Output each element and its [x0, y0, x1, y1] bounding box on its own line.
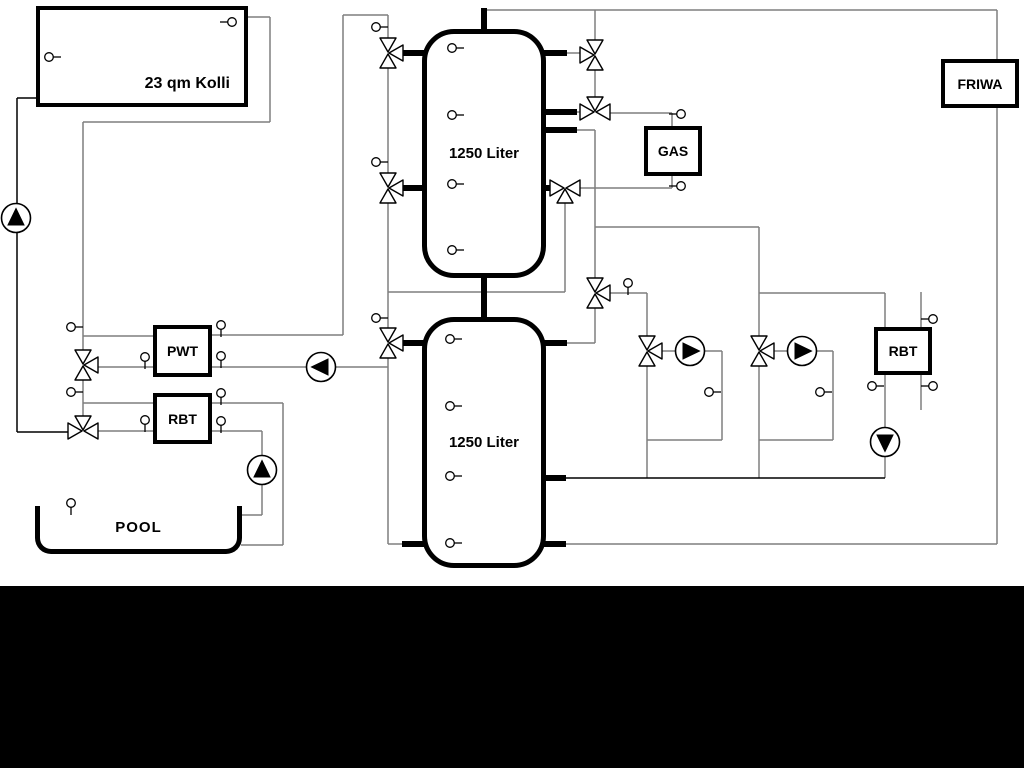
- three-way-valve-circuit2: [751, 336, 774, 366]
- sensor-tank-bottom-4: [446, 539, 462, 548]
- sensor-tank-top-3: [448, 180, 464, 189]
- sensor-circuit2-return: [816, 388, 832, 397]
- sensor-tank-top-1: [448, 44, 464, 53]
- sensor-rbt-pool-out-bottom: [217, 417, 226, 433]
- circuit2-pump-icon: [788, 337, 817, 366]
- sensor-heating-consumer-return: [921, 382, 937, 391]
- three-way-valve-tank-top-left-lower: [380, 173, 403, 203]
- sensor-rbt-pool-out-top: [217, 389, 226, 405]
- bottom-black-bar: [0, 586, 1024, 768]
- sensor-pwt-out-bottom: [217, 352, 226, 368]
- sensor-gas-return: [669, 182, 685, 191]
- sensor-rbt-heating-return: [868, 382, 884, 391]
- three-way-valve-tank-bottom-left: [380, 328, 403, 358]
- solar-pump-icon: [2, 204, 31, 233]
- three-way-valve-pwt: [75, 350, 98, 380]
- three-way-valve-tank-top-left-upper: [380, 38, 403, 68]
- three-way-valve-gas-flow: [580, 97, 610, 120]
- sensor-heating-consumer-flow: [921, 315, 937, 324]
- sensor-tank-top-2: [448, 111, 464, 120]
- sensor-rbt-pool-valve: [141, 416, 150, 432]
- sensor-valve-bottom-left: [372, 314, 388, 323]
- sensor-collector-flow: [220, 18, 236, 27]
- sensor-pwt-out-top: [217, 321, 226, 337]
- hydraulic-schematic: 23 qm Kolli 1250 Liter 1250 Liter GAS FR…: [0, 0, 1024, 768]
- three-way-valve-heating-supply: [587, 278, 610, 308]
- sensor-circuit1-return: [705, 388, 721, 397]
- sensor-valve-top-left-upper: [372, 23, 388, 32]
- circuit1-pump-icon: [676, 337, 705, 366]
- rbt-heating-pump-icon: [871, 428, 900, 457]
- three-way-valve-pool: [68, 416, 98, 439]
- sensor-collector: [45, 53, 61, 62]
- sensor-pwt-valve: [141, 353, 150, 369]
- pool-pump-icon: [248, 456, 277, 485]
- three-way-valve-circuit1: [639, 336, 662, 366]
- pwt-pump-icon: [307, 353, 336, 382]
- sensor-pool-water: [67, 499, 76, 515]
- sensor-tank-bottom-1: [446, 335, 462, 344]
- sensor-rbt-pool-in: [67, 388, 83, 397]
- sensor-tank-bottom-2: [446, 402, 462, 411]
- sensor-gas-flow: [669, 110, 685, 119]
- sensor-tank-top-4: [448, 246, 464, 255]
- three-way-valve-tank-top-right-upper: [580, 40, 603, 70]
- sensor-valve-top-left-lower: [372, 158, 388, 167]
- sensor-pwt-in: [67, 323, 83, 332]
- sensor-tank-bottom-3: [446, 472, 462, 481]
- three-way-valve-gas-return: [550, 180, 580, 203]
- sensor-heating-supply: [624, 279, 633, 295]
